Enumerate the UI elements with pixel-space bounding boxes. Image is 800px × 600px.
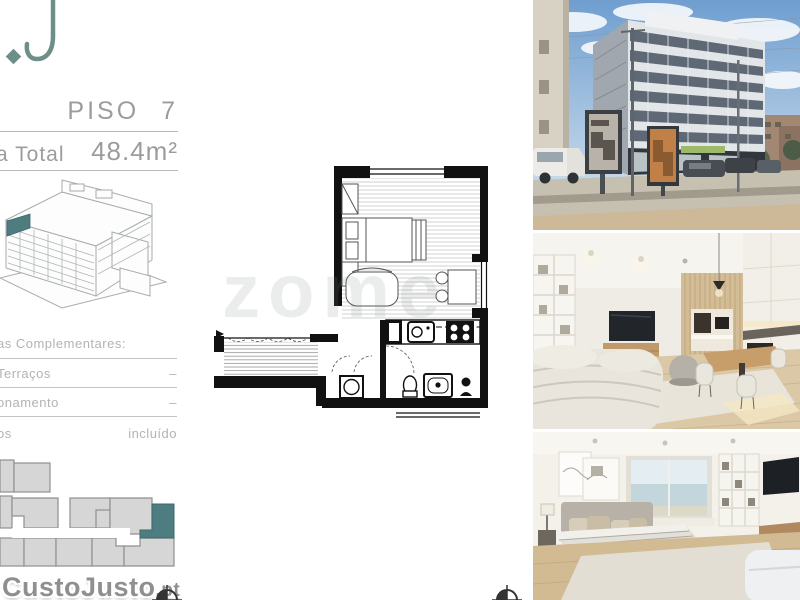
photo-building-exterior [533, 0, 800, 230]
north-symbol-plan [492, 585, 522, 600]
listing-sheet: PISO 7 a Total 48.4m² [0, 0, 800, 600]
north-compass-icon [152, 585, 182, 600]
logo-j-mark-icon [0, 0, 80, 75]
building-exterior-photo [533, 0, 800, 230]
building-axonometric-icon [0, 170, 168, 318]
agency-watermark: zome [222, 248, 448, 335]
header-divider-top [0, 131, 178, 132]
area-row-label: os [0, 426, 12, 441]
brand-logo [0, 0, 80, 75]
area-row-label: onamento [0, 395, 59, 410]
complementary-areas-title: as Complementares: [0, 336, 177, 359]
north-symbol-keyplan [152, 585, 182, 600]
total-area-label: a Total [0, 143, 65, 167]
building-axonometric [0, 170, 168, 318]
area-row-label: Terraços [0, 366, 51, 381]
total-area-row: a Total 48.4m² [0, 136, 178, 167]
bedroom-photo [533, 432, 800, 600]
floor-key-plan-icon [0, 452, 180, 577]
spec-header: PISO 7 a Total 48.4m² [0, 97, 178, 171]
photo-living-room [533, 233, 800, 429]
floor-label: PISO 7 [0, 97, 178, 126]
area-row-value: incluído [128, 426, 177, 441]
north-compass-icon [492, 585, 522, 600]
floor-key-plan [0, 452, 180, 577]
area-row-terraces: Terraços – [0, 359, 177, 388]
total-area-value: 48.4m² [91, 136, 178, 167]
living-room-photo [533, 233, 800, 429]
area-row-storage: os incluído [0, 417, 177, 447]
area-row-value: – [169, 366, 177, 381]
complementary-areas: as Complementares: Terraços – onamento –… [0, 336, 177, 447]
area-row-parking: onamento – [0, 388, 177, 417]
listing-site-name: CustoJusto [2, 572, 156, 600]
area-row-value: – [169, 395, 177, 410]
photo-bedroom [533, 432, 800, 600]
